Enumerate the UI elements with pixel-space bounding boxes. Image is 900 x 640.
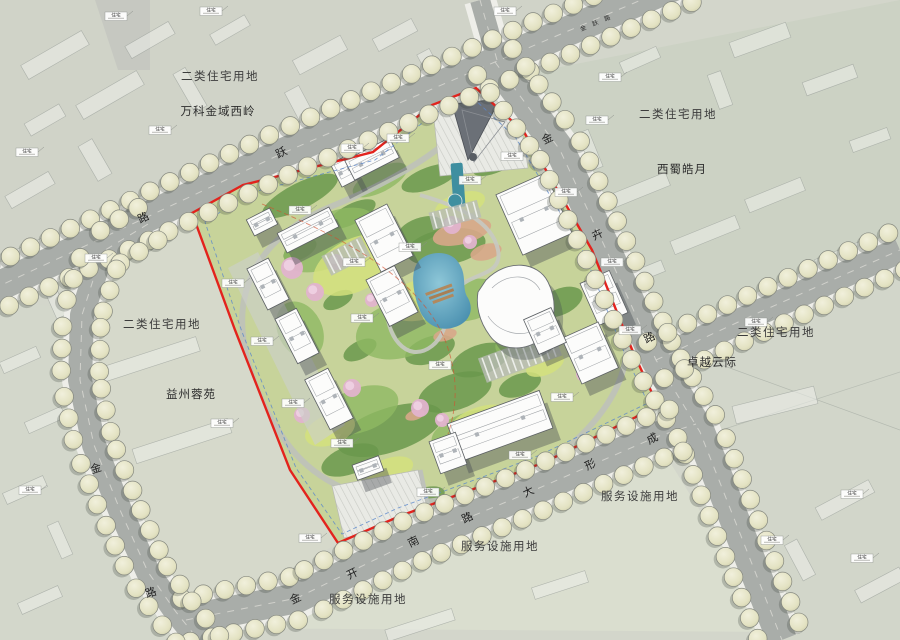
annotation-spec-line bbox=[764, 542, 780, 543]
street-tree bbox=[298, 157, 317, 176]
street-tree bbox=[595, 290, 614, 309]
annotation-text: 住宅 bbox=[349, 258, 359, 265]
street-tree bbox=[141, 182, 160, 201]
street-tree bbox=[115, 461, 134, 480]
annotation-text: 住宅 bbox=[295, 206, 305, 213]
street-tree bbox=[423, 56, 442, 75]
street-tree bbox=[91, 340, 110, 359]
street-tree bbox=[101, 422, 120, 441]
street-tree bbox=[149, 231, 168, 250]
street-tree bbox=[779, 268, 798, 287]
street-tree bbox=[319, 148, 338, 167]
street-tree bbox=[315, 551, 334, 570]
annotation-spec-line bbox=[604, 264, 620, 265]
street-tree bbox=[637, 408, 656, 427]
street-tree bbox=[289, 611, 308, 630]
street-tree bbox=[561, 45, 580, 64]
street-tree bbox=[53, 339, 72, 358]
annotation-text: 住宅 bbox=[337, 439, 347, 446]
street-tree bbox=[732, 588, 751, 607]
street-tree bbox=[91, 221, 110, 240]
annotation-text: 住宅 bbox=[206, 7, 216, 14]
annotation-spec-line bbox=[462, 182, 478, 183]
street-tree bbox=[374, 571, 393, 590]
street-tree bbox=[259, 572, 278, 591]
street-tree bbox=[97, 516, 116, 535]
annotation-spec-line bbox=[88, 260, 104, 261]
street-tree bbox=[107, 260, 126, 279]
street-tree bbox=[635, 272, 654, 291]
street-tree bbox=[678, 314, 697, 333]
street-tree bbox=[718, 296, 737, 315]
annotation-text: 住宅 bbox=[405, 243, 415, 250]
street-tree bbox=[91, 318, 110, 337]
project-name-label: 益州蓉苑 bbox=[166, 387, 216, 401]
annotation-text: 住宅 bbox=[625, 326, 635, 333]
street-tree bbox=[765, 552, 784, 571]
street-tree bbox=[568, 230, 587, 249]
annotation-text: 住宅 bbox=[557, 393, 567, 400]
street-tree bbox=[496, 469, 515, 488]
annotation-text: 住宅 bbox=[423, 488, 433, 495]
street-tree bbox=[97, 401, 116, 420]
street-tree bbox=[571, 132, 590, 151]
street-tree bbox=[738, 286, 757, 305]
street-tree bbox=[581, 36, 600, 55]
annotation-spec-line bbox=[225, 285, 241, 286]
annotation-spec-line bbox=[497, 13, 513, 14]
street-tree bbox=[717, 429, 736, 448]
annotation-text: 住宅 bbox=[857, 554, 867, 561]
street-tree bbox=[617, 232, 636, 251]
annotation-text: 住宅 bbox=[592, 116, 602, 123]
annotation-text: 住宅 bbox=[847, 490, 857, 497]
street-tree bbox=[64, 269, 83, 288]
annotation-text: 住宅 bbox=[465, 176, 475, 183]
street-tree bbox=[460, 88, 479, 107]
street-tree bbox=[171, 575, 190, 594]
street-tree bbox=[402, 65, 421, 84]
land-use-label: 服务设施用地 bbox=[461, 539, 539, 553]
street-tree bbox=[642, 10, 661, 29]
street-tree bbox=[150, 541, 169, 560]
street-tree bbox=[281, 117, 300, 136]
street-tree bbox=[716, 547, 735, 566]
land-use-label: 二类住宅用地 bbox=[181, 69, 259, 83]
street-tree bbox=[382, 73, 401, 92]
street-tree bbox=[115, 556, 134, 575]
street-tree bbox=[658, 323, 677, 342]
annotation-text: 住宅 bbox=[111, 12, 121, 19]
street-tree bbox=[476, 478, 495, 497]
blossom-tree-highlight bbox=[465, 237, 472, 244]
annotation-spec-line bbox=[432, 367, 448, 368]
street-tree bbox=[493, 518, 512, 537]
street-tree bbox=[698, 305, 717, 324]
plaza-fountain bbox=[469, 153, 477, 161]
street-tree bbox=[55, 387, 74, 406]
street-tree bbox=[759, 277, 778, 296]
annotation-spec-line bbox=[354, 320, 370, 321]
street-tree bbox=[179, 212, 198, 231]
annotation-spec-line bbox=[108, 18, 124, 19]
annotation-text: 住宅 bbox=[217, 419, 227, 426]
annotation-text: 住宅 bbox=[347, 144, 357, 151]
annotation-spec-line bbox=[334, 445, 350, 446]
annotation-text: 住宅 bbox=[91, 254, 101, 261]
street-tree bbox=[540, 170, 559, 189]
street-tree bbox=[240, 135, 259, 154]
street-tree bbox=[574, 483, 593, 502]
street-tree bbox=[239, 184, 258, 203]
land-use-label: 二类住宅用地 bbox=[639, 107, 717, 121]
street-tree bbox=[237, 576, 256, 595]
street-tree bbox=[196, 609, 215, 628]
annotation-spec-line bbox=[420, 494, 436, 495]
street-tree bbox=[543, 93, 562, 112]
annotation-spec-line bbox=[622, 332, 638, 333]
annotation-text: 住宅 bbox=[228, 279, 238, 286]
street-tree bbox=[216, 581, 235, 600]
street-tree bbox=[516, 57, 535, 76]
annotation-spec-line bbox=[346, 264, 362, 265]
street-tree bbox=[789, 613, 808, 632]
street-tree bbox=[415, 503, 434, 522]
street-tree bbox=[602, 27, 621, 46]
street-tree bbox=[80, 475, 99, 494]
street-tree bbox=[432, 544, 451, 563]
street-tree bbox=[544, 4, 563, 23]
project-name-label: 西蜀皓月 bbox=[657, 162, 707, 176]
street-tree bbox=[362, 82, 381, 101]
street-tree bbox=[301, 108, 320, 127]
street-tree bbox=[577, 250, 596, 269]
street-tree bbox=[835, 287, 854, 306]
master-plan-svg: 住宅住宅住宅住宅住宅住宅住宅住宅住宅住宅住宅住宅住宅住宅住宅住宅住宅住宅住宅住宅… bbox=[0, 0, 900, 640]
land-use-label: 二类住宅用地 bbox=[123, 317, 201, 331]
street-tree bbox=[839, 242, 858, 261]
street-tree bbox=[614, 466, 633, 485]
street-tree bbox=[626, 252, 645, 271]
street-tree bbox=[708, 527, 727, 546]
street-tree bbox=[468, 66, 487, 85]
street-tree bbox=[106, 536, 125, 555]
street-tree bbox=[536, 452, 555, 471]
annotation-spec-line bbox=[302, 540, 318, 541]
annotation-spec-line bbox=[22, 492, 38, 493]
street-tree bbox=[741, 490, 760, 509]
street-tree bbox=[260, 126, 279, 145]
street-tree bbox=[321, 99, 340, 118]
site-plan-canvas: 住宅住宅住宅住宅住宅住宅住宅住宅住宅住宅住宅住宅住宅住宅住宅住宅住宅住宅住宅住宅… bbox=[0, 0, 900, 640]
street-tree bbox=[246, 619, 265, 638]
street-tree bbox=[394, 512, 413, 531]
land-use-label: 服务设施用地 bbox=[329, 592, 407, 606]
street-tree bbox=[420, 105, 439, 124]
street-tree bbox=[53, 317, 72, 336]
street-tree bbox=[725, 449, 744, 468]
street-tree bbox=[123, 481, 142, 500]
street-tree bbox=[622, 19, 641, 38]
street-tree bbox=[463, 39, 482, 58]
street-tree bbox=[507, 119, 526, 138]
street-tree bbox=[556, 110, 575, 129]
street-tree bbox=[530, 75, 549, 94]
street-tree bbox=[40, 278, 59, 297]
street-tree bbox=[534, 501, 553, 520]
street-tree bbox=[577, 434, 596, 453]
annotation-text: 住宅 bbox=[305, 534, 315, 541]
street-tree bbox=[608, 212, 627, 231]
street-tree bbox=[655, 448, 674, 467]
street-tree bbox=[279, 166, 298, 185]
street-tree bbox=[692, 486, 711, 505]
annotation-spec-line bbox=[844, 496, 860, 497]
street-tree bbox=[483, 30, 502, 49]
street-tree bbox=[52, 361, 71, 380]
street-tree bbox=[580, 152, 599, 171]
annotation-text: 住宅 bbox=[288, 399, 298, 406]
street-tree bbox=[58, 290, 77, 309]
street-tree bbox=[695, 387, 714, 406]
annotation-spec-line bbox=[402, 249, 418, 250]
street-tree bbox=[557, 443, 576, 462]
street-tree bbox=[267, 615, 286, 634]
street-tree bbox=[795, 305, 814, 324]
street-tree bbox=[354, 532, 373, 551]
annotation-text: 住宅 bbox=[357, 314, 367, 321]
street-tree bbox=[443, 47, 462, 66]
street-tree bbox=[413, 552, 432, 571]
street-tree bbox=[503, 40, 522, 59]
street-tree bbox=[435, 494, 454, 513]
street-tree bbox=[92, 379, 111, 398]
blossom-tree-highlight bbox=[284, 260, 295, 271]
street-tree bbox=[219, 194, 238, 213]
street-tree bbox=[855, 278, 874, 297]
street-tree bbox=[0, 296, 19, 315]
annotation-spec-line bbox=[214, 425, 230, 426]
annotation-text: 住宅 bbox=[500, 7, 510, 14]
street-tree bbox=[90, 362, 109, 381]
street-tree bbox=[516, 461, 535, 480]
street-tree bbox=[554, 492, 573, 511]
annotation-text: 住宅 bbox=[515, 451, 525, 458]
land-use-label: 服务设施用地 bbox=[601, 489, 679, 503]
blossom-tree-highlight bbox=[345, 381, 354, 390]
street-tree bbox=[130, 242, 149, 261]
street-tree bbox=[740, 609, 759, 628]
street-tree bbox=[61, 219, 80, 238]
street-tree bbox=[781, 593, 800, 612]
annotation-text: 住宅 bbox=[507, 152, 517, 159]
street-tree bbox=[634, 372, 653, 391]
street-tree bbox=[161, 173, 180, 192]
street-tree bbox=[494, 101, 513, 120]
street-tree bbox=[622, 350, 641, 369]
annotation-spec-line bbox=[292, 212, 308, 213]
street-tree bbox=[107, 440, 126, 459]
annotation-spec-line bbox=[602, 79, 618, 80]
annotation-text: 住宅 bbox=[561, 188, 571, 195]
street-tree bbox=[815, 296, 834, 315]
street-tree bbox=[724, 568, 743, 587]
annotation-spec-line bbox=[344, 150, 360, 151]
street-tree bbox=[586, 270, 605, 289]
street-tree bbox=[181, 163, 200, 182]
street-tree bbox=[819, 251, 838, 270]
annotation-spec-line bbox=[203, 13, 219, 14]
street-tree bbox=[393, 561, 412, 580]
annotation-text: 住宅 bbox=[767, 536, 777, 543]
street-tree bbox=[132, 501, 151, 520]
street-tree bbox=[64, 430, 83, 449]
annotation-spec-line bbox=[152, 132, 168, 133]
street-tree bbox=[706, 406, 725, 425]
annotation-text: 住宅 bbox=[605, 73, 615, 80]
street-tree bbox=[153, 616, 172, 635]
street-tree bbox=[440, 96, 459, 115]
blossom-tree-highlight bbox=[437, 415, 444, 422]
street-tree bbox=[597, 425, 616, 444]
project-name-label: 卓越云际 bbox=[687, 355, 737, 369]
street-tree bbox=[749, 511, 768, 530]
street-tree bbox=[59, 409, 78, 428]
street-tree bbox=[399, 114, 418, 133]
street-tree bbox=[334, 541, 353, 560]
street-tree bbox=[199, 203, 218, 222]
annotation-spec-line bbox=[589, 122, 605, 123]
street-tree bbox=[773, 572, 792, 591]
street-tree bbox=[41, 229, 60, 248]
street-tree bbox=[503, 21, 522, 40]
street-tree bbox=[481, 83, 500, 102]
land-use-label: 二类住宅用地 bbox=[737, 325, 815, 339]
street-tree bbox=[456, 486, 475, 505]
street-tree bbox=[541, 53, 560, 72]
street-tree bbox=[342, 91, 361, 110]
annotation-text: 住宅 bbox=[257, 337, 267, 344]
annotation-spec-line bbox=[285, 405, 301, 406]
street-tree bbox=[259, 175, 278, 194]
street-tree bbox=[295, 561, 314, 580]
street-tree bbox=[660, 400, 679, 419]
annotation-text: 住宅 bbox=[751, 318, 761, 325]
annotation-spec-line bbox=[390, 140, 406, 141]
street-tree bbox=[655, 369, 674, 388]
annotation-text: 住宅 bbox=[607, 258, 617, 265]
street-tree bbox=[700, 506, 719, 525]
annotation-text: 住宅 bbox=[25, 486, 35, 493]
street-tree bbox=[220, 145, 239, 164]
street-tree bbox=[733, 470, 752, 489]
project-name-label: 万科金域西岭 bbox=[181, 104, 256, 118]
street-tree bbox=[674, 442, 693, 461]
annotation-text: 住宅 bbox=[435, 361, 445, 368]
street-tree bbox=[617, 417, 636, 436]
annotation-spec-line bbox=[512, 457, 528, 458]
annotation-spec-line bbox=[558, 194, 574, 195]
street-tree bbox=[88, 495, 107, 514]
street-tree bbox=[531, 150, 550, 169]
street-tree bbox=[200, 154, 219, 173]
street-tree bbox=[559, 210, 578, 229]
street-tree bbox=[100, 281, 119, 300]
street-tree bbox=[94, 302, 113, 321]
street-tree bbox=[158, 557, 177, 576]
street-tree bbox=[524, 13, 543, 32]
annotation-text: 住宅 bbox=[155, 126, 165, 133]
street-tree bbox=[879, 224, 898, 243]
annotation-text: 住宅 bbox=[393, 134, 403, 141]
street-tree bbox=[374, 522, 393, 541]
blossom-tree-highlight bbox=[367, 295, 374, 302]
street-tree bbox=[589, 172, 608, 191]
street-tree bbox=[20, 287, 39, 306]
annotation-text: 住宅 bbox=[22, 148, 32, 155]
street-tree bbox=[599, 192, 618, 211]
street-tree bbox=[859, 233, 878, 252]
blossom-tree-highlight bbox=[308, 285, 317, 294]
street-tree bbox=[875, 269, 894, 288]
street-tree bbox=[1, 247, 20, 266]
street-tree bbox=[21, 238, 40, 257]
annotation-spec-line bbox=[854, 560, 870, 561]
street-tree bbox=[513, 510, 532, 529]
street-tree bbox=[141, 521, 160, 540]
street-tree bbox=[662, 2, 681, 21]
street-tree bbox=[110, 210, 129, 229]
street-tree bbox=[799, 260, 818, 279]
blossom-tree-highlight bbox=[413, 401, 422, 410]
street-tree bbox=[183, 592, 202, 611]
annotation-spec-line bbox=[19, 154, 35, 155]
street-tree bbox=[635, 457, 654, 476]
street-tree bbox=[684, 465, 703, 484]
annotation-spec-line bbox=[554, 399, 570, 400]
annotation-spec-line bbox=[254, 343, 270, 344]
annotation-spec-line bbox=[504, 158, 520, 159]
street-tree bbox=[644, 292, 663, 311]
